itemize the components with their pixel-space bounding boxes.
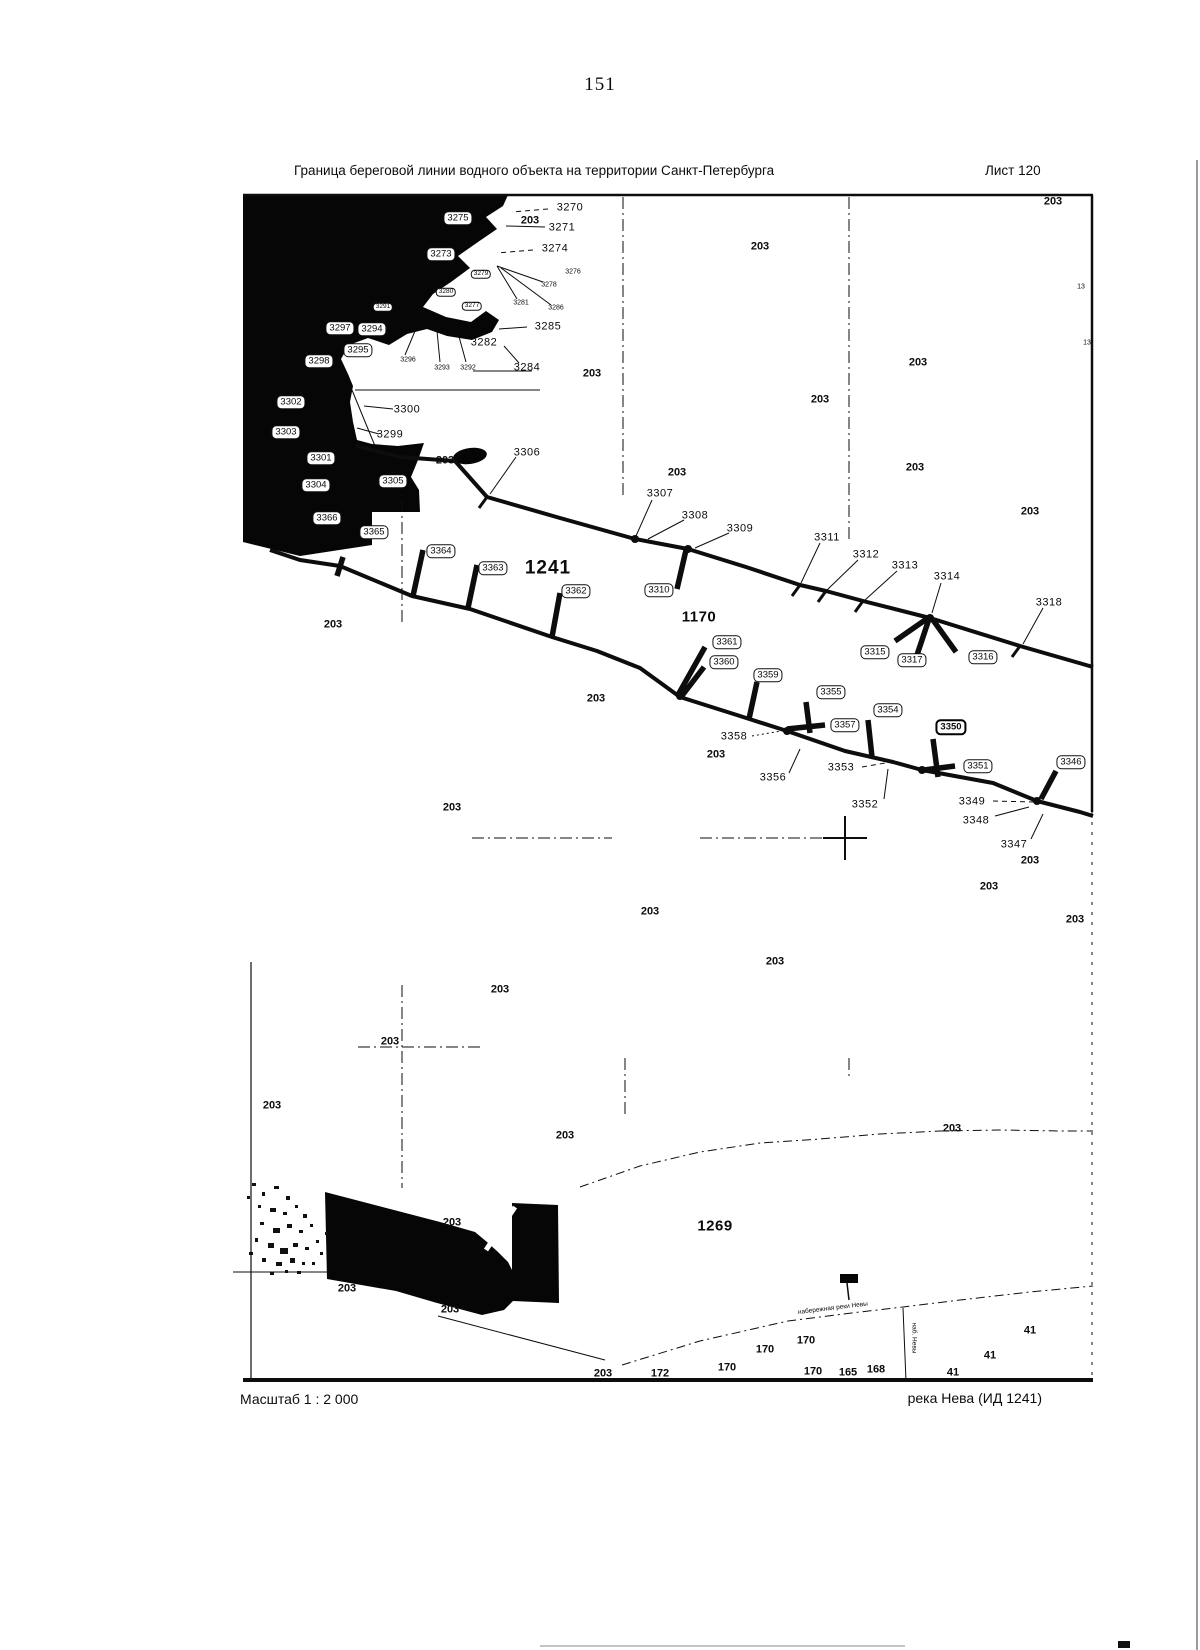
scanned-document-page: 151 Граница береговой линии водного объе… xyxy=(0,0,1200,1650)
leader-lines xyxy=(352,209,1043,1360)
land-mass xyxy=(243,195,559,1315)
shoreline-boundary-lower xyxy=(270,550,1093,816)
cadastral-grid-lines xyxy=(358,197,867,1188)
map-frame xyxy=(243,195,1093,1380)
scan-artifacts xyxy=(540,160,1197,1650)
water-object-label: река Нева (ИД 1241) xyxy=(870,1390,1042,1406)
scan-white-slash xyxy=(486,1207,515,1250)
speckle-texture xyxy=(247,1183,328,1275)
scale-label: Масштаб 1 : 2 000 xyxy=(240,1391,358,1407)
shoreline-boundary-upper xyxy=(356,446,1093,667)
boundary-tick-marks xyxy=(337,497,1056,805)
flag-symbol xyxy=(840,1274,858,1300)
